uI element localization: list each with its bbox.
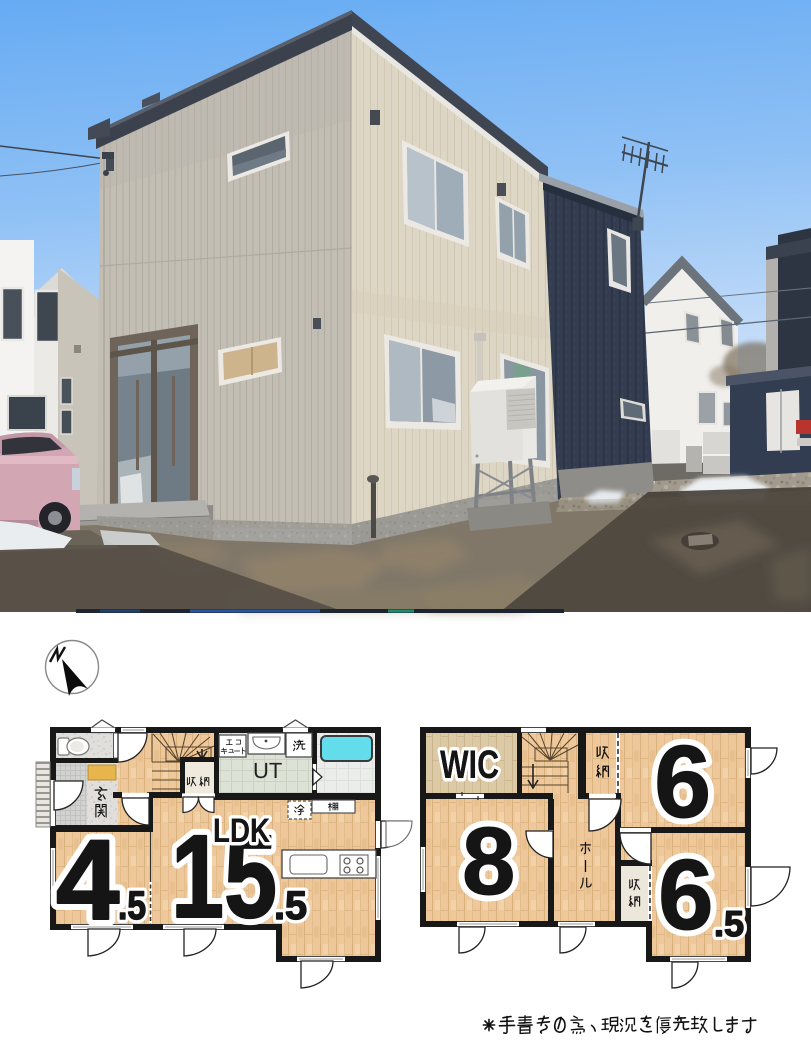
svg-text:8: 8 bbox=[462, 808, 515, 915]
svg-text:UT: UT bbox=[253, 758, 282, 783]
svg-text:6: 6 bbox=[658, 839, 714, 951]
svg-text:6: 6 bbox=[654, 724, 711, 839]
svg-text:.5: .5 bbox=[274, 884, 307, 928]
svg-text:WIC: WIC bbox=[440, 743, 499, 787]
svg-text:4: 4 bbox=[56, 817, 119, 944]
svg-text:.5: .5 bbox=[714, 903, 744, 944]
svg-text:LDK: LDK bbox=[213, 812, 270, 850]
svg-text:.5: .5 bbox=[118, 884, 146, 928]
